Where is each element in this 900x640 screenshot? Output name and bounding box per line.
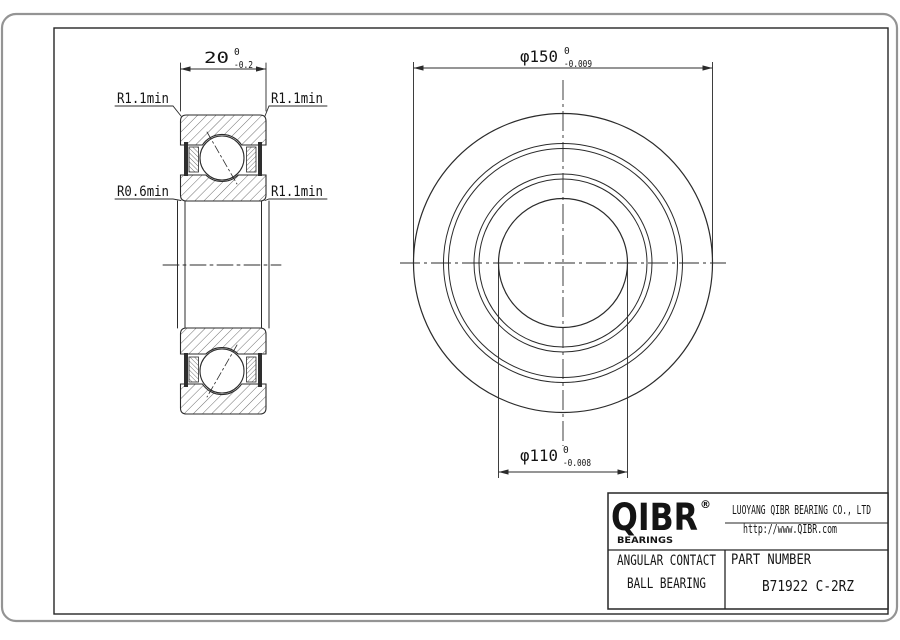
seal-right [258,142,262,176]
part-number-value: B71922 C-2RZ [762,577,854,595]
outer-diameter-tol-upper: 0 [564,46,570,57]
ball [200,136,244,180]
qibr-logo: QIBR ® BEARINGS [611,496,711,546]
title-block: QIBR ® BEARINGS LUOYANG QIBR BEARING CO.… [608,493,888,609]
radius-label: R0.6min [117,184,169,200]
seal-left [184,142,188,176]
seal-right [258,353,262,387]
width-tol-upper: 0 [234,47,240,58]
inner-ring-shoulder-right [247,147,257,172]
part-number-label: PART NUMBER [731,552,811,568]
product-type-line1: ANGULAR CONTACT [617,553,716,569]
radius-label: R1.1min [271,184,323,200]
logo-subtext: BEARINGS [617,536,673,546]
width-tol-lower: -0.2 [234,60,253,71]
logo-text: QIBR [611,496,698,539]
width-value: 20 [204,48,229,67]
inner-ring-shoulder-left [189,357,199,382]
inner-ring-shoulder-right [247,357,257,382]
product-type-line2: BALL BEARING [627,576,706,592]
inner-ring-shoulder-left [189,147,199,172]
outer-diameter-value: φ150 [520,47,558,66]
radius-callout-mid-right: R1.1min [265,184,327,201]
lower-cross-section [181,328,267,414]
ball [200,349,244,393]
outer-diameter-tol-lower: -0.009 [564,59,592,70]
seal-left [184,353,188,387]
radius-label: R1.1min [117,91,169,107]
bearing-drawing-page: 20 0 -0.2 R1.1min R1.1min R0.6min R1.1mi… [0,0,900,636]
bore-diameter-tol-upper: 0 [563,445,569,456]
radius-label: R1.1min [271,91,323,107]
registered-trademark-icon: ® [700,498,711,511]
company-website: http://www.QIBR.com [743,522,837,536]
bore-diameter-value: φ110 [520,446,558,465]
upper-cross-section [181,115,267,201]
company-name: LUOYANG QIBR BEARING CO., LTD [732,503,871,517]
drawing-svg: 20 0 -0.2 R1.1min R1.1min R0.6min R1.1mi… [0,0,900,636]
bore-diameter-tol-lower: -0.008 [563,458,591,469]
